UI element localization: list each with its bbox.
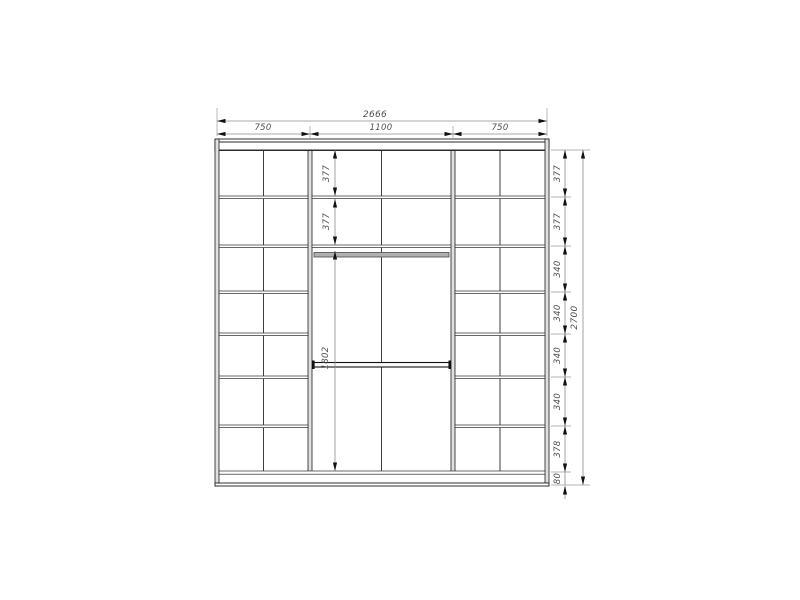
dim-label-row-5: 340 [553,347,563,364]
shelf [455,333,545,336]
shelf [455,425,545,428]
drawing-canvas: 2666 750 1100 750 377 377 [0,0,800,600]
dim-label-total-height: 2700 [570,305,580,329]
shelf [219,333,308,336]
shelf [219,425,308,428]
dim-label-row-4: 340 [553,304,563,321]
dim-label-row-6: 340 [553,393,563,410]
hanging-rod-lower-bar [314,363,449,368]
dim-label-row-1: 377 [553,165,563,182]
dim-label-left-section-width: 750 [254,123,271,133]
rod-end-cap-left [312,361,315,370]
dim-label-right-section-width: 750 [491,123,508,133]
shelf [219,245,308,248]
dim-label-row-3: 340 [553,260,563,277]
shelf [219,291,308,294]
dim-label-center-section-width: 1100 [370,123,393,133]
top-panel [215,139,549,150]
dimension-top-sections: 750 1100 750 [217,123,547,139]
dimension-right-overall: 2700 [570,150,583,485]
right-wall [545,139,549,486]
wardrobe-drawing: 2666 750 1100 750 377 377 [0,0,800,600]
dim-label-row-2: 377 [553,213,563,230]
shelf [312,196,451,199]
dim-label-center-row-1: 377 [322,165,332,182]
dim-label-center-row-2: 377 [322,213,332,230]
cabinet-structure [215,139,549,486]
dim-label-hanging-space: 1802 [321,347,331,370]
dim-label-total-width: 2666 [363,110,387,120]
shelf [455,196,545,199]
shelf [312,245,451,248]
section-divider-right [451,150,455,472]
shelf [219,196,308,199]
rod-end-cap-right [449,361,452,370]
section-divider-left [308,150,312,472]
dim-label-plinth: 80 [553,473,563,484]
shelf [455,291,545,294]
dim-label-row-7: 378 [553,440,563,457]
hanging-rod-upper [314,253,449,258]
left-wall [215,139,219,486]
bottom-shelf [219,471,545,474]
base-plinth [215,483,549,486]
shelf [219,376,308,379]
shelf [455,245,545,248]
shelf [455,376,545,379]
